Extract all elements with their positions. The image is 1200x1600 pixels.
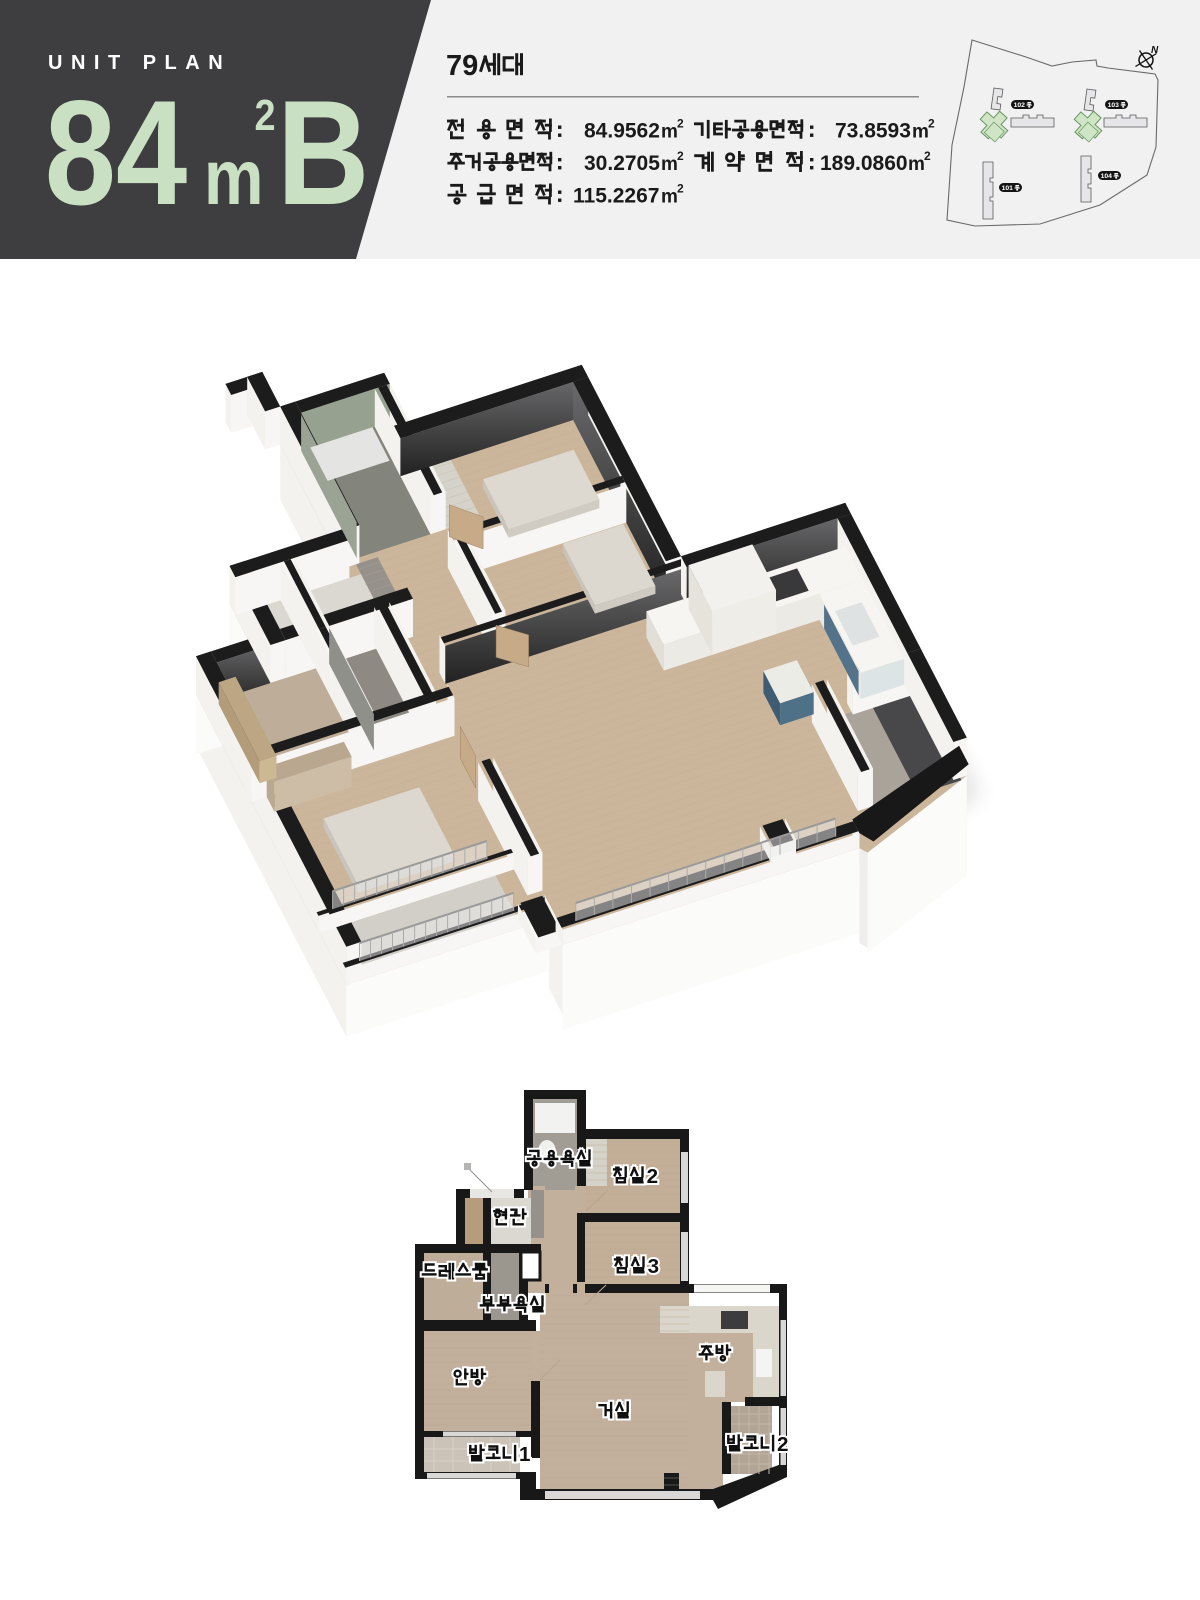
svg-text:2: 2 xyxy=(647,1165,658,1188)
svg-text:1: 1 xyxy=(519,1443,530,1466)
svg-text:2: 2 xyxy=(777,1433,788,1456)
svg-text:3: 3 xyxy=(648,1255,659,1278)
